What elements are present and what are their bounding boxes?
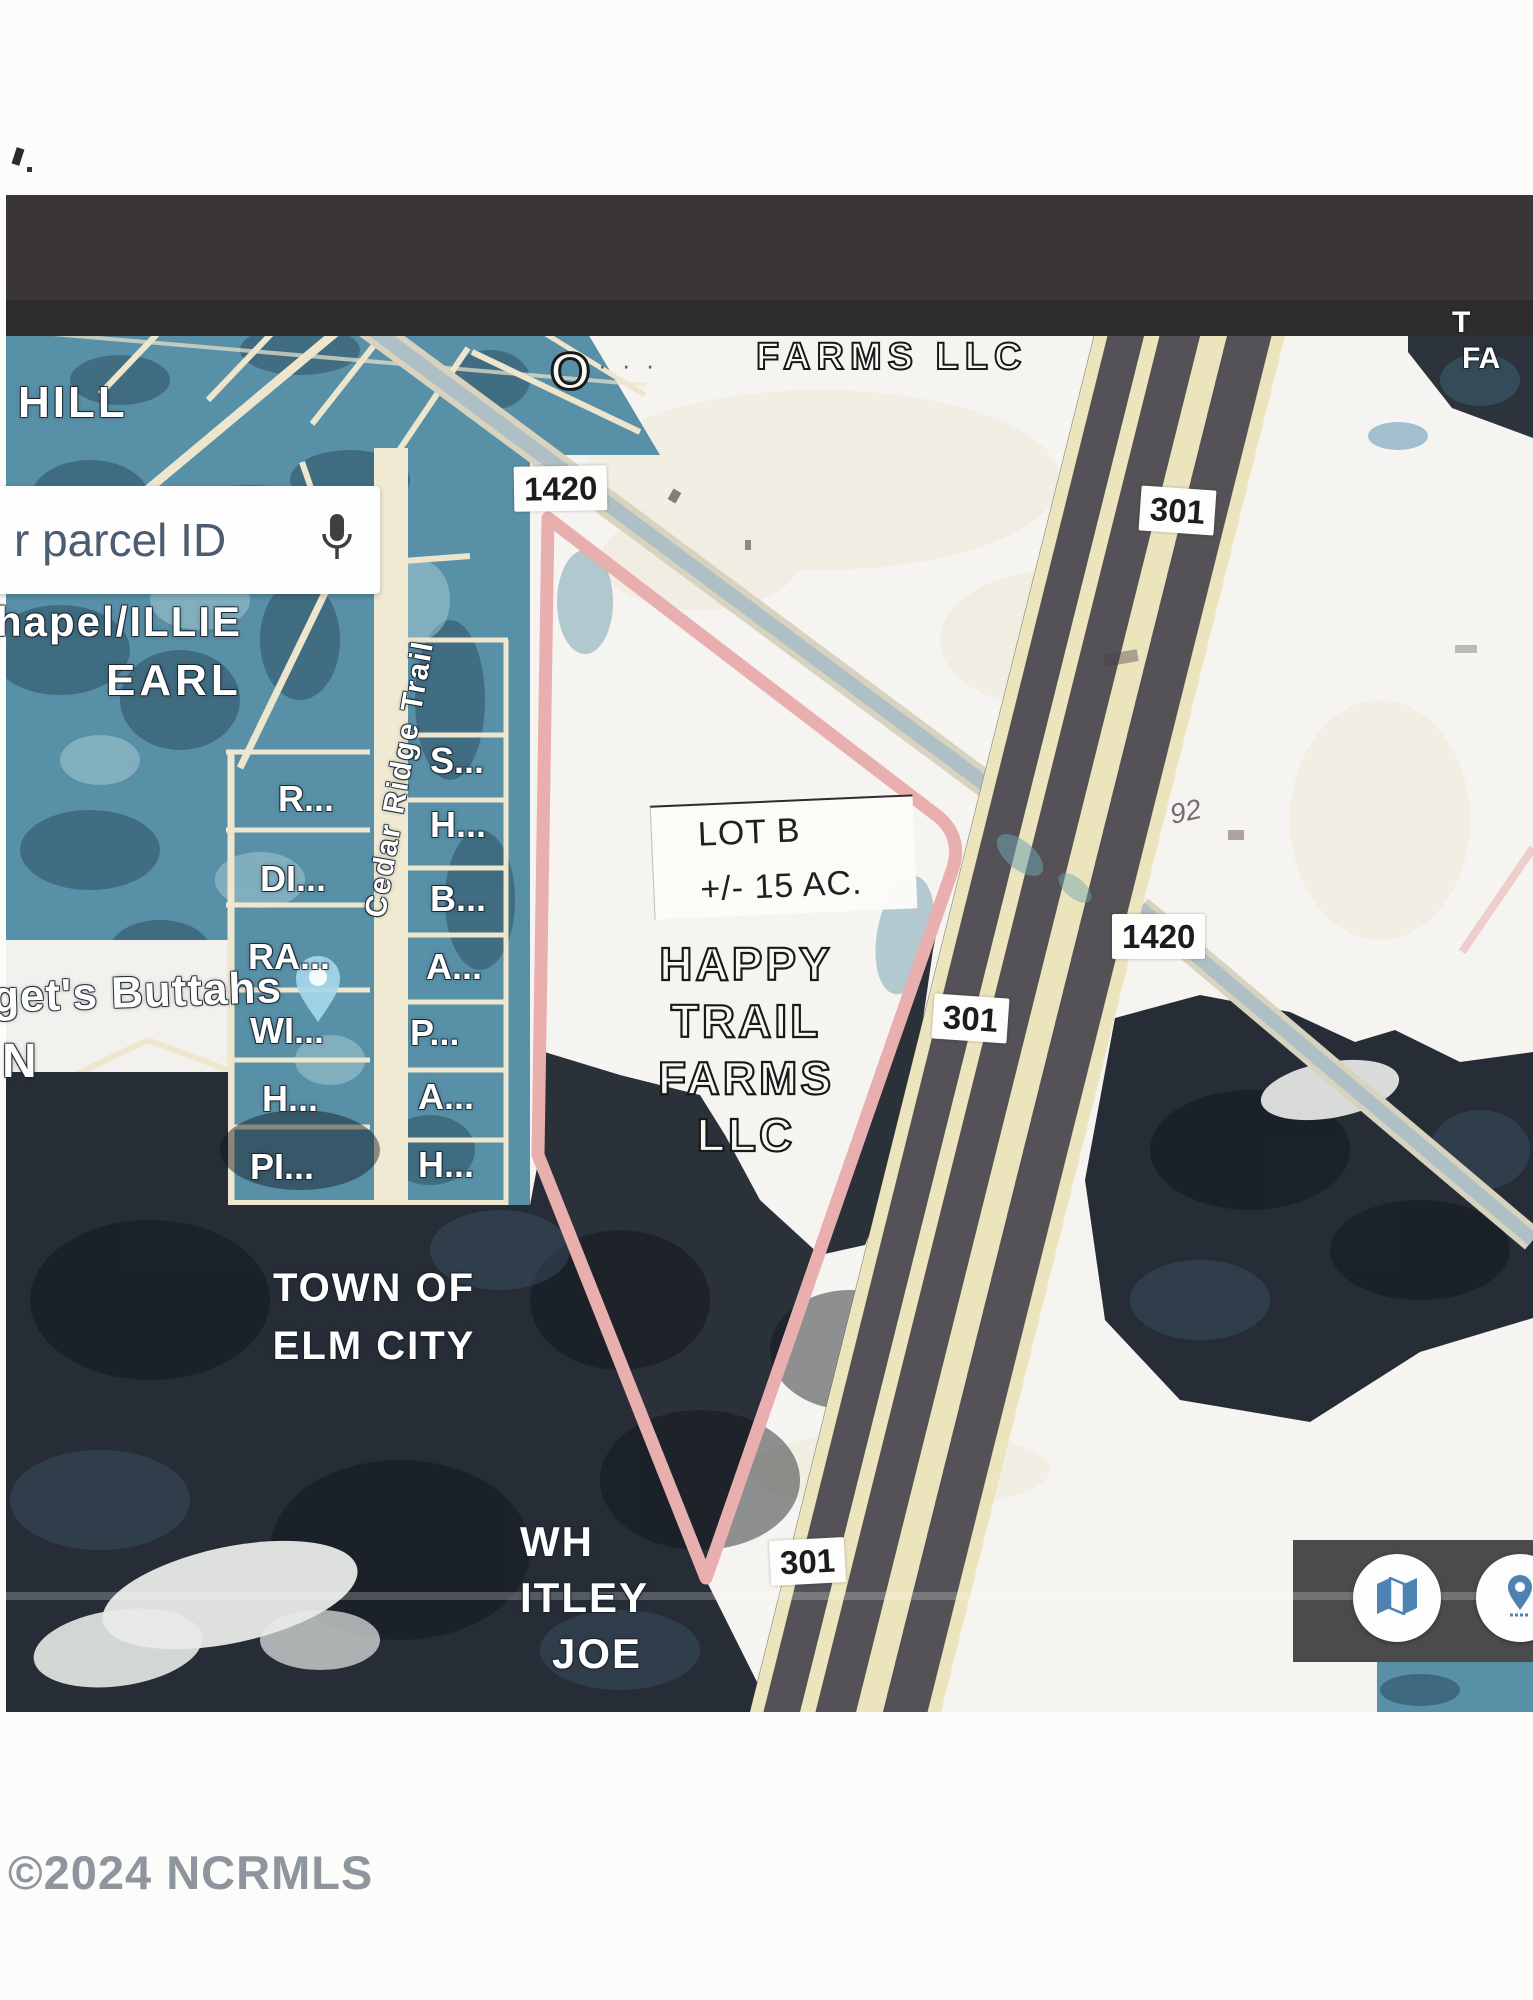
search-value: r parcel ID xyxy=(14,513,226,567)
handwritten-mark: 92 xyxy=(1167,793,1204,831)
label-top-right-fa: FA xyxy=(1462,342,1500,376)
parcel-label: H... xyxy=(430,804,486,846)
scan-band-shade xyxy=(6,300,1533,336)
label-chapel-illie: hapel/ILLIE xyxy=(0,598,242,646)
owner-line: FARMS xyxy=(596,1050,896,1107)
road-chip-1420: 1420 xyxy=(1112,914,1205,959)
road-chip-301: 301 xyxy=(769,1537,846,1586)
parcel-label: PI... xyxy=(250,1146,314,1188)
scan-dots: · · · xyxy=(598,350,658,381)
scan-speck xyxy=(745,540,751,550)
owner-name: HAPPY TRAIL FARMS LLC xyxy=(596,936,896,1164)
owner-line: LLC xyxy=(596,1107,896,1164)
map-view-button[interactable] xyxy=(1353,1554,1441,1642)
label-farms-llc-top: FARMS LLC xyxy=(756,336,1027,379)
location-pin-icon xyxy=(1503,1574,1533,1623)
scan-speck xyxy=(1228,830,1244,840)
blue-smudge xyxy=(1368,422,1428,450)
mls-watermark: ©2024 NCRMLS xyxy=(8,1845,373,1900)
label-town-of: TOWN OF xyxy=(258,1266,490,1311)
owner-line: TRAIL xyxy=(596,993,896,1050)
lot-acreage: +/- 15 AC. xyxy=(700,861,917,909)
scan-speck xyxy=(1455,645,1477,653)
label-whitley-itley: ITLEY xyxy=(520,1574,649,1622)
parcel-label: H... xyxy=(418,1144,474,1186)
microphone-icon[interactable] xyxy=(318,512,356,573)
scan-streak xyxy=(6,1592,1533,1600)
label-earl: EARL xyxy=(106,656,242,706)
lot-callout: LOT B +/- 15 AC. xyxy=(650,794,918,919)
road-chip-301: 301 xyxy=(932,993,1010,1043)
label-elm-city: ELM CITY xyxy=(258,1324,490,1369)
scanned-map-page: HILL r parcel ID hapel/ILLIE EARL FARMS … xyxy=(0,0,1533,2000)
road-chip-301: 301 xyxy=(1139,485,1217,535)
parcel-label: A... xyxy=(426,946,482,988)
parcel-label: DI... xyxy=(260,858,326,900)
teal-bottom-right-splotch xyxy=(1380,1674,1460,1706)
parcel-label: P... xyxy=(410,1012,459,1054)
owner-line: HAPPY xyxy=(596,936,896,993)
folded-map-icon xyxy=(1376,1577,1418,1620)
label-whitley-joe: JOE xyxy=(552,1630,642,1678)
parcel-label: H... xyxy=(262,1078,318,1120)
parcel-label: A... xyxy=(418,1076,474,1118)
parcel-label: R... xyxy=(278,778,334,820)
label-top-right-t: T xyxy=(1452,306,1470,340)
lot-name: LOT B xyxy=(697,806,914,854)
parcel-label: S... xyxy=(430,740,484,782)
label-buttahs: get's Buttahs xyxy=(0,963,283,1023)
label-whitley-wh: WH xyxy=(520,1518,594,1566)
label-hill: HILL xyxy=(18,378,128,428)
road-chip-1420: 1420 xyxy=(514,465,608,512)
search-input[interactable]: r parcel ID xyxy=(0,486,380,594)
label-n: N xyxy=(2,1034,37,1089)
parcel-label: WI... xyxy=(250,1010,324,1052)
parcel-label: B... xyxy=(430,878,486,920)
label-letter-o: O xyxy=(550,342,593,402)
